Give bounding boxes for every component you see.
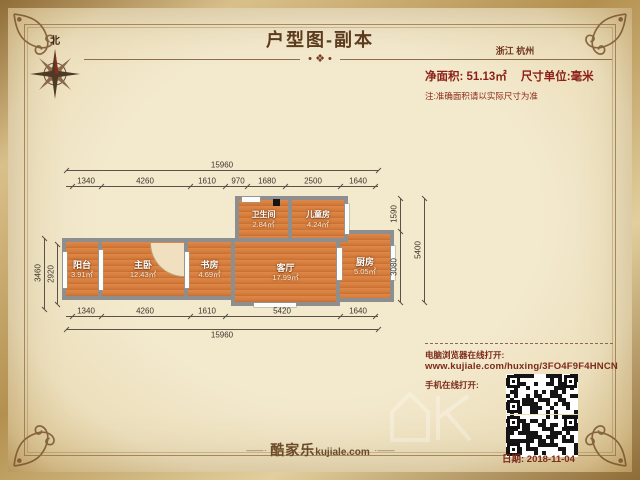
door-opening [242,197,260,202]
brand-footer: —— · 酷家乐kujiale.com · —— [0,440,640,460]
dim-label: 5400 [414,241,423,259]
net-area-value: 净面积: 51.13㎡ [425,71,507,83]
window [345,204,349,234]
brand-ornament-right: · —— [374,445,394,455]
dim-label: 4260 [136,177,154,186]
room-bathroom: 卫生间 2.84㎡ [235,196,292,242]
room-label: 书房 [200,260,218,270]
dim-line-left-inner [57,244,58,304]
dim-label: 5420 [273,307,291,316]
dim-label: 3460 [34,264,43,282]
window [185,252,189,288]
room-balcony: 阳台 3.91㎡ [62,238,102,300]
dim-label: 1590 [390,205,399,223]
header-rule-right [340,59,612,60]
net-area-line: 净面积: 51.13㎡尺寸单位:毫米 [425,68,594,84]
window [99,250,103,290]
dim-label: 970 [231,177,244,186]
share-url-link[interactable]: www.kujiale.com/huxing/3FO4F9F4HNCN [425,361,618,372]
brand-name: 酷家乐 [270,442,315,458]
room-label: 客厅 [276,263,294,273]
brand-ornament-left: —— · [246,445,266,455]
room-area: 17.99㎡ [272,273,298,282]
room-study: 书房 4.69㎡ [184,238,235,300]
dim-label: 1610 [198,307,216,316]
room-label: 儿童房 [306,210,330,220]
dim-label: 15960 [211,331,233,340]
dim-label: 3080 [390,258,399,276]
pillar [273,199,280,206]
room-area: 4.69㎡ [198,270,220,279]
dim-label: 1640 [349,307,367,316]
room-kids: 儿童房 4.24㎡ [288,196,348,242]
dim-label: 1340 [77,177,95,186]
room-area: 5.05㎡ [354,267,376,276]
kujiale-watermark-icon [386,382,476,448]
dim-label: 1640 [349,177,367,186]
dim-label: 1680 [258,177,276,186]
divider-ornament-icon: • ❖ • [300,52,340,65]
window [63,252,67,288]
dim-line-right-inner [400,198,401,302]
dim-label: 15960 [211,161,233,170]
compass-rose-icon [28,47,82,101]
room-label: 厨房 [356,257,374,267]
room-label: 阳台 [73,260,91,270]
footer-divider [425,343,613,344]
dim-line-top-total [66,170,378,171]
dim-label: 1610 [198,177,216,186]
dim-label: 2920 [47,265,56,283]
dim-line-top-segments [66,186,378,187]
area-note: 注:准确面积请以实际尺寸为准 [425,90,538,102]
room-area: 12.43㎡ [130,270,156,279]
brand-domain: kujiale.com [315,447,369,458]
header-rule-left [84,59,300,60]
location-label: 浙江 杭州 [425,44,605,57]
room-area: 3.91㎡ [71,270,93,279]
dim-line-left-outer [44,238,45,309]
qr-code [506,374,578,414]
dim-line-right-outer [424,198,425,302]
room-living: 客厅 17.99㎡ [231,238,340,306]
pc-open-label: 电脑浏览器在线打开: [425,349,504,361]
room-label: 主卧 [134,260,152,270]
room-area: 4.24㎡ [307,220,329,229]
floorplan-page: 北 户型图-副本 • ❖ • 浙江 杭州 净面积: 51.13㎡尺寸单位:毫米 … [0,0,640,480]
dim-label: 4260 [136,307,154,316]
dim-label: 1340 [77,307,95,316]
door-opening [337,248,342,280]
room-label: 卫生间 [252,210,276,220]
dim-label: 2500 [304,177,322,186]
dim-line-bottom-segments [66,316,378,317]
room-area: 2.84㎡ [252,220,274,229]
unit-label: 尺寸单位:毫米 [521,71,594,83]
